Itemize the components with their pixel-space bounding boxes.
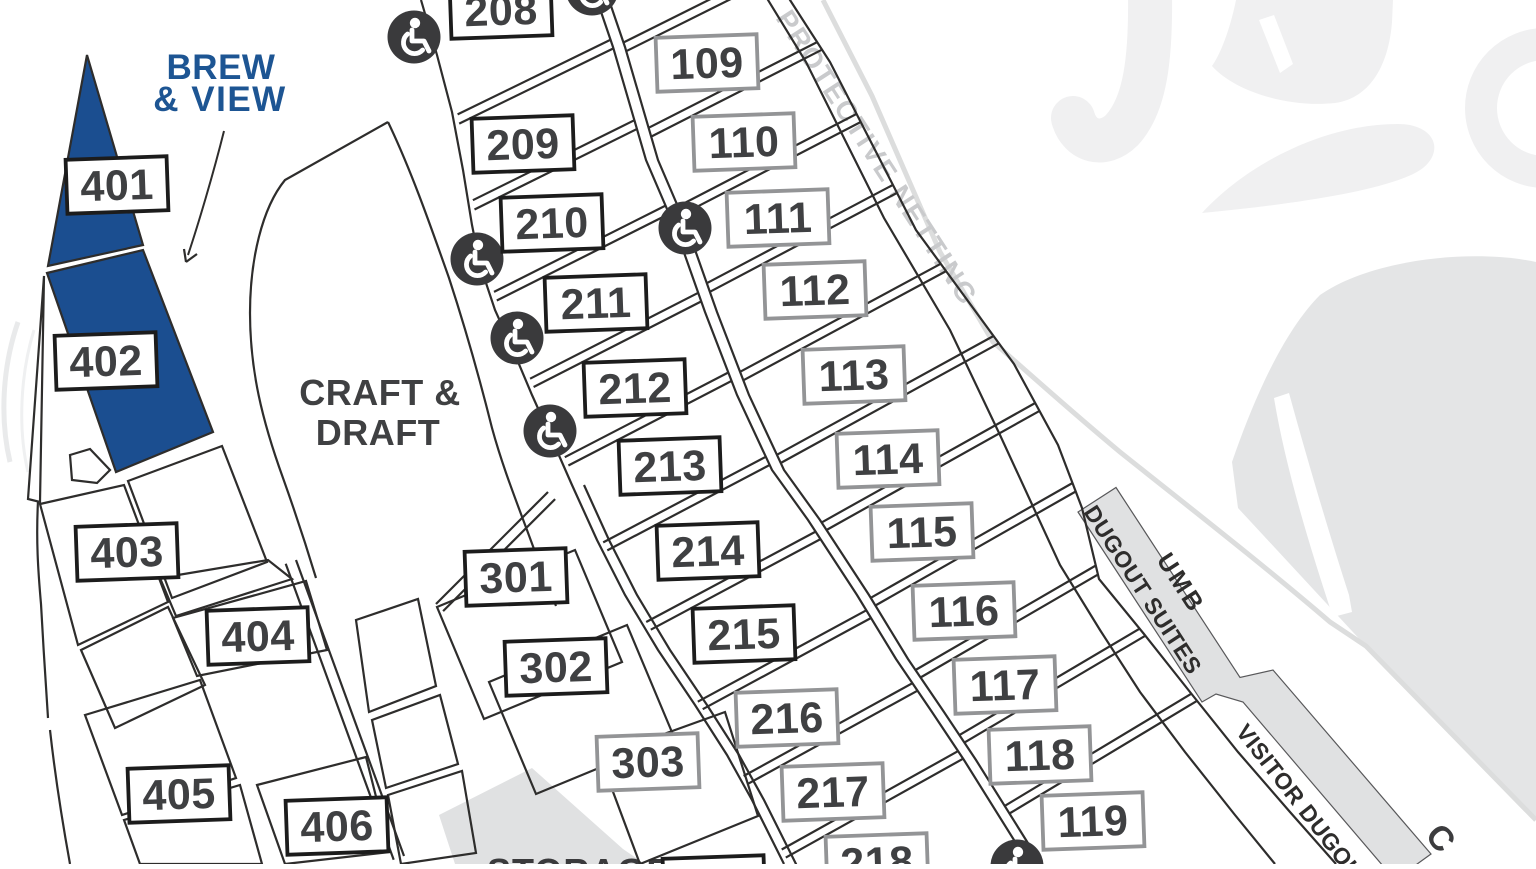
svg-text:303: 303 [611,738,686,789]
svg-text:112: 112 [779,266,852,316]
svg-text:217: 217 [796,768,871,819]
svg-text:213: 213 [633,442,708,493]
svg-text:405: 405 [142,770,217,821]
svg-text:302: 302 [519,643,594,694]
svg-text:113: 113 [818,351,891,401]
svg-text:404: 404 [221,612,296,663]
svg-text:109: 109 [670,39,745,90]
svg-text:114: 114 [852,435,925,485]
svg-text:211: 211 [560,279,633,329]
svg-text:218: 218 [840,838,915,864]
svg-text:215: 215 [707,610,782,661]
svg-text:403: 403 [90,528,165,579]
svg-text:214: 214 [671,527,746,578]
svg-text:& VIEW: & VIEW [153,80,286,119]
svg-text:216: 216 [750,694,825,745]
svg-text:117: 117 [969,661,1042,711]
svg-text:301: 301 [479,553,554,604]
svg-text:402: 402 [69,337,144,388]
svg-text:115: 115 [886,508,959,558]
svg-text:111: 111 [743,194,813,244]
svg-text:119: 119 [1057,797,1130,847]
svg-text:209: 209 [486,120,561,171]
svg-text:110: 110 [708,118,781,168]
svg-text:118: 118 [1004,731,1077,781]
svg-text:DRAFT: DRAFT [316,412,440,453]
svg-text:210: 210 [515,199,590,250]
svg-text:CRAFT &: CRAFT & [299,372,460,413]
svg-text:401: 401 [80,161,155,212]
svg-text:116: 116 [928,587,1001,637]
svg-text:406: 406 [300,802,375,853]
svg-text:212: 212 [598,364,673,415]
svg-text:208: 208 [464,0,539,36]
